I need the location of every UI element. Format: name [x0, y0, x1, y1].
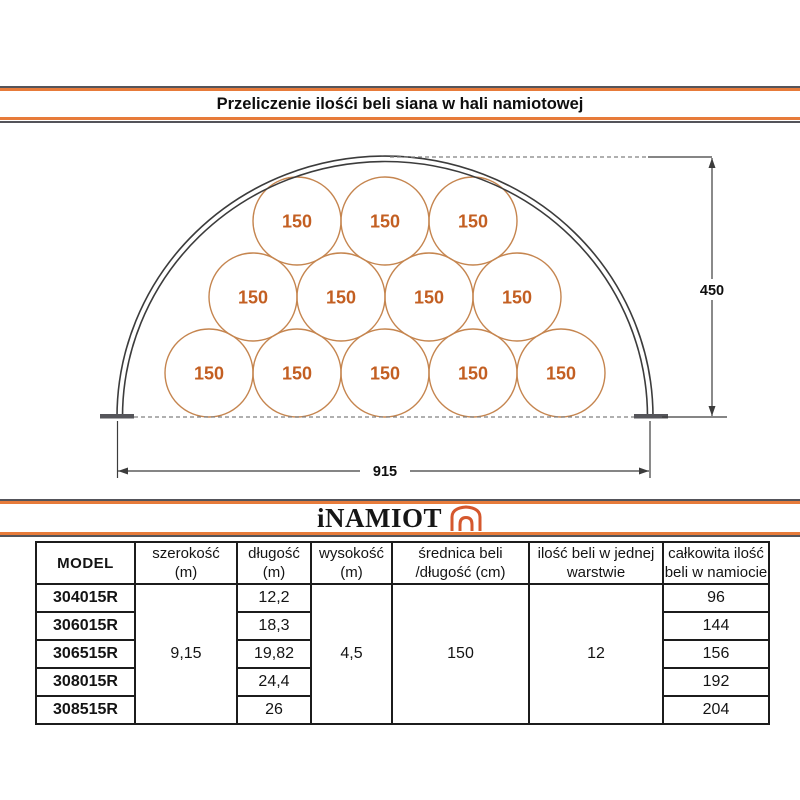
table-cell: 144 [663, 612, 769, 640]
table-cell: 304015R [36, 584, 135, 612]
column-header: szerokość(m) [135, 542, 237, 584]
table-cell: 306015R [36, 612, 135, 640]
column-header: wysokość(m) [311, 542, 392, 584]
arrow-right-icon [639, 468, 649, 475]
bale-diameter-label: 150 [194, 364, 224, 384]
bale-diameter-label: 150 [238, 288, 268, 308]
bale-diameter-label: 150 [414, 288, 444, 308]
column-header: MODEL [36, 542, 135, 584]
column-header: średnica beli/długość (cm) [392, 542, 529, 584]
bale-diameter-label: 150 [282, 212, 312, 232]
logo-text: iNAMIOT [317, 504, 442, 532]
table-cell: 156 [663, 640, 769, 668]
logo: iNAMIOT [0, 504, 800, 532]
column-header: ilość beli w jednejwarstwie [529, 542, 663, 584]
tent-logo-icon [449, 504, 483, 532]
arrow-down-icon [709, 406, 716, 416]
bale-diameter-label: 150 [282, 364, 312, 384]
table-cell: 9,15 [135, 584, 237, 724]
arrow-up-icon [709, 158, 716, 168]
arrow-left-icon [118, 468, 128, 475]
table-cell: 24,4 [237, 668, 311, 696]
table-cell: 192 [663, 668, 769, 696]
table-cell: 26 [237, 696, 311, 724]
bale-diameter-label: 150 [326, 288, 356, 308]
table-cell: 306515R [36, 640, 135, 668]
page: Przeliczenie ilośći beli siana w hali na… [0, 0, 800, 800]
bale-diameter-label: 150 [458, 212, 488, 232]
table-cell: 96 [663, 584, 769, 612]
table-header-row: MODELszerokość(m)długość(m)wysokość(m)śr… [36, 542, 769, 584]
table-row: 304015R9,1512,24,51501296 [36, 584, 769, 612]
bale-diameter-label: 150 [458, 364, 488, 384]
table-cell: 308015R [36, 668, 135, 696]
width-dimension-label: 915 [373, 464, 397, 480]
bale-circles: 150150150150150150150150150150150150 [165, 177, 605, 417]
table-cell: 19,82 [237, 640, 311, 668]
table-cell: 12,2 [237, 584, 311, 612]
table-cell: 18,3 [237, 612, 311, 640]
table-cell: 308515R [36, 696, 135, 724]
right-foot-plate [634, 414, 668, 419]
table-cell: 12 [529, 584, 663, 724]
left-foot-plate [100, 414, 134, 419]
height-dimension-label: 450 [700, 283, 724, 299]
bale-diameter-label: 150 [502, 288, 532, 308]
column-header: długość(m) [237, 542, 311, 584]
logo-bottom-gray-rule [0, 535, 800, 537]
table-cell: 150 [392, 584, 529, 724]
table-cell: 4,5 [311, 584, 392, 724]
bale-diameter-label: 150 [370, 212, 400, 232]
bale-diameter-label: 150 [370, 364, 400, 384]
column-header: całkowita ilośćbeli w namiocie [663, 542, 769, 584]
table-cell: 204 [663, 696, 769, 724]
spec-table: MODELszerokość(m)długość(m)wysokość(m)śr… [35, 541, 770, 725]
bale-diameter-label: 150 [546, 364, 576, 384]
